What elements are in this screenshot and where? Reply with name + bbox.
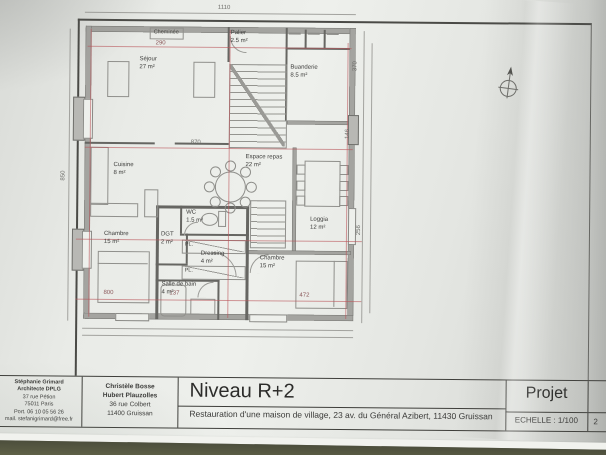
photo-of-floor-plan: 1110 870 290 850 800 137 472 370 146 256… [0, 0, 606, 455]
